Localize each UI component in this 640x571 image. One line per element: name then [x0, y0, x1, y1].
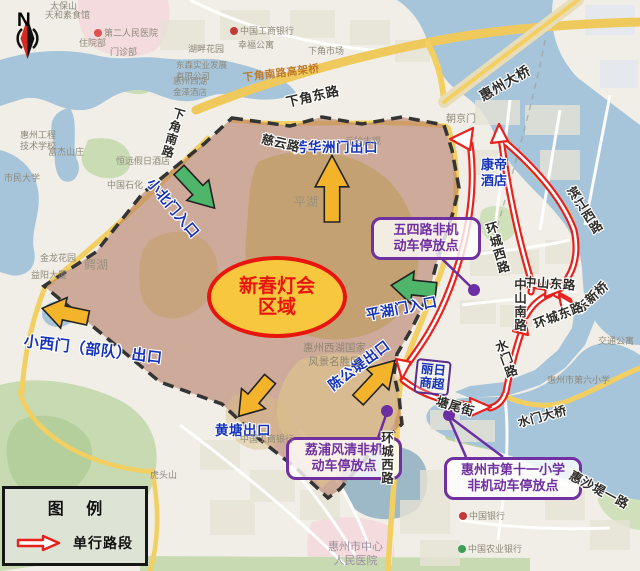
bank-icon: [230, 27, 238, 35]
poi-yiyang: 益阳大厦: [31, 270, 67, 281]
road-label-zhongshannan: 中山南路: [510, 278, 529, 332]
area-label-pinghu: 平湖: [294, 195, 318, 211]
parking-dot-wusi: [468, 284, 480, 296]
area-label-xihu-scenic: 惠州西湖国家 风景名胜区: [303, 342, 366, 369]
poi-shimindaxue: 市民大学: [4, 173, 40, 184]
parking-dot-lipu: [381, 405, 393, 417]
poi-menzhenbu: 门诊部: [110, 47, 137, 58]
poi-gongshang2: 中国工商银行: [240, 434, 294, 445]
poi-hengyuan: 恒远假日酒店: [116, 156, 170, 167]
poi-jinze: 惠州西湖 金泽酒店: [173, 76, 207, 97]
legend: 图 例 单行路段: [2, 486, 148, 566]
festival-area-badge: 新春灯会 区域: [207, 256, 347, 338]
bank-icon: [458, 545, 466, 553]
poi-hupan: 湖畔花园: [188, 44, 224, 55]
road-label-zhongshandong: 中山东路: [523, 271, 576, 294]
hospital-cross-icon: [94, 29, 102, 37]
poi-yuanmiao: 元妙古观: [345, 136, 381, 147]
area-label-center-hospital: 惠州市中心 人民医院: [328, 540, 383, 569]
poi-xiajiaoshichang: 下角市场: [308, 46, 344, 57]
one-way-arrow-icon: [15, 533, 63, 553]
lantern-festival-map: N 新春灯会 区域 小北门入口 芳华洲门出口 小西门（部队）出口 黄塘出口 平湖…: [0, 0, 640, 571]
compass-north-label: N: [17, 10, 31, 32]
poi-fujie: 富杰山庄: [48, 147, 84, 158]
road-label-huanchengxi-south: 环城西路: [377, 431, 396, 485]
poi-hutoushan: 虎头山: [150, 470, 177, 481]
liri-mall-label: 丽日 商超: [413, 358, 451, 396]
bank-icon: [459, 512, 467, 520]
poi-jinlong: 金龙花园: [40, 253, 76, 264]
poi-chaojingmen: 朝京门: [446, 114, 476, 127]
legend-title: 图 例: [5, 495, 145, 519]
area-label-ehu: 鳄湖: [84, 258, 108, 274]
poi-zhuyuanbu: 住院部: [79, 38, 106, 49]
parking-box-shiyi: 惠州市第十一小学 非机动车停放点: [444, 457, 582, 500]
poi-zhongguoyinhang: 中国银行: [459, 509, 505, 522]
parking-box-wusi: 五四路非机 动车停放点: [371, 217, 481, 260]
poi-gongshang: 中国工商银行: [230, 24, 294, 37]
poi-jiaotong: 交通公寓: [598, 336, 634, 347]
legend-one-way-label: 单行路段: [73, 533, 133, 553]
kangdi-hotel-label: 康帝 酒店: [481, 157, 507, 188]
poi-tianhe: 天和素食馆: [45, 10, 90, 21]
poi-nongyeyinhang: 中国农业银行: [458, 542, 522, 555]
poi-shihua: 中国石化: [107, 180, 143, 191]
poi-xingfu: 幸福公寓: [238, 40, 274, 51]
poi-diliuxiaoxue: 惠州市第六小学: [547, 375, 610, 386]
